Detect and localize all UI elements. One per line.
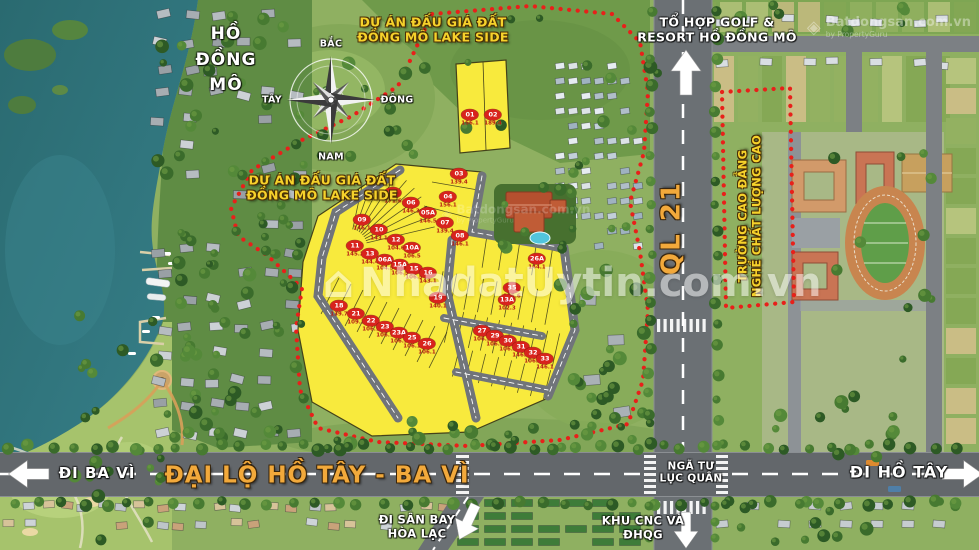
compass-west-label: TÂY (262, 94, 282, 105)
project-label-left: DỰ ÁN ĐẤU GIÁ ĐẤT ĐỒNG MÔ LAKE SIDE (246, 173, 397, 203)
compass-east-label: ĐÔNG (381, 94, 414, 105)
plot-marker: 12104.6 (387, 234, 404, 252)
plot-marker: 01156.1 (461, 109, 478, 127)
plot-marker: 05A146.5 (419, 207, 436, 225)
go-airport-label: ĐI SÂN BAY HÒA LẠC (379, 513, 456, 540)
plot-marker: 04156.1 (439, 191, 456, 209)
watermark-tile: ◈ Batdongsan.com.vn by PropertyGuru (442, 203, 591, 224)
intersection-label: NGÃ TƯ LỤC QUÂN (659, 461, 722, 486)
plot-marker: 03139.4 (450, 168, 467, 186)
plot-marker: 09146.1 (353, 214, 370, 232)
compass-north-label: BẮC (320, 38, 342, 49)
house-logo-icon: ⌂ (323, 261, 355, 305)
compass-south-label: NAM (318, 151, 344, 162)
golf-resort-label: TỔ HỢP GOLF & RESORT HỒ ĐỒNG MÔ (637, 15, 797, 45)
plot-marker: 06146.3 (402, 197, 419, 215)
project-label-top: DỰ ÁN ĐẤU GIÁ ĐẤT ĐỒNG MÔ LAKE SIDE (357, 15, 508, 45)
go-hotay-label: ĐI HỒ TÂY (850, 464, 949, 483)
brand-logo-icon: ◈ (807, 17, 821, 38)
plot-marker: 02189.4 (484, 109, 501, 127)
plot-marker: 26106.1 (418, 338, 435, 356)
go-bavi-label: ĐI BA VÌ (59, 465, 136, 483)
tech-park-label: KHU CNC VÀ ĐHQG (602, 514, 684, 541)
plot-marker: 10143.1 (370, 224, 387, 242)
plot-marker: 10A106.5 (403, 242, 420, 260)
boulevard-label: ĐẠI LỘ HỒ TÂY - BA VÌ (164, 462, 469, 489)
masterplan-map: HỒ ĐỒNG MÔ DỰ ÁN ĐẤU GIÁ ĐẤT ĐỒNG MÔ LAK… (0, 0, 979, 550)
watermark-corner: ◈ Batdongsan.com.vn by PropertyGuru (807, 16, 971, 39)
watermark-center: ⌂ NhadatUytin.com.vn (323, 260, 822, 306)
plot-marker: 33146.1 (536, 353, 553, 371)
lake-label: HỒ ĐỒNG MÔ (196, 22, 257, 99)
plot-marker: 08146.1 (451, 230, 468, 248)
